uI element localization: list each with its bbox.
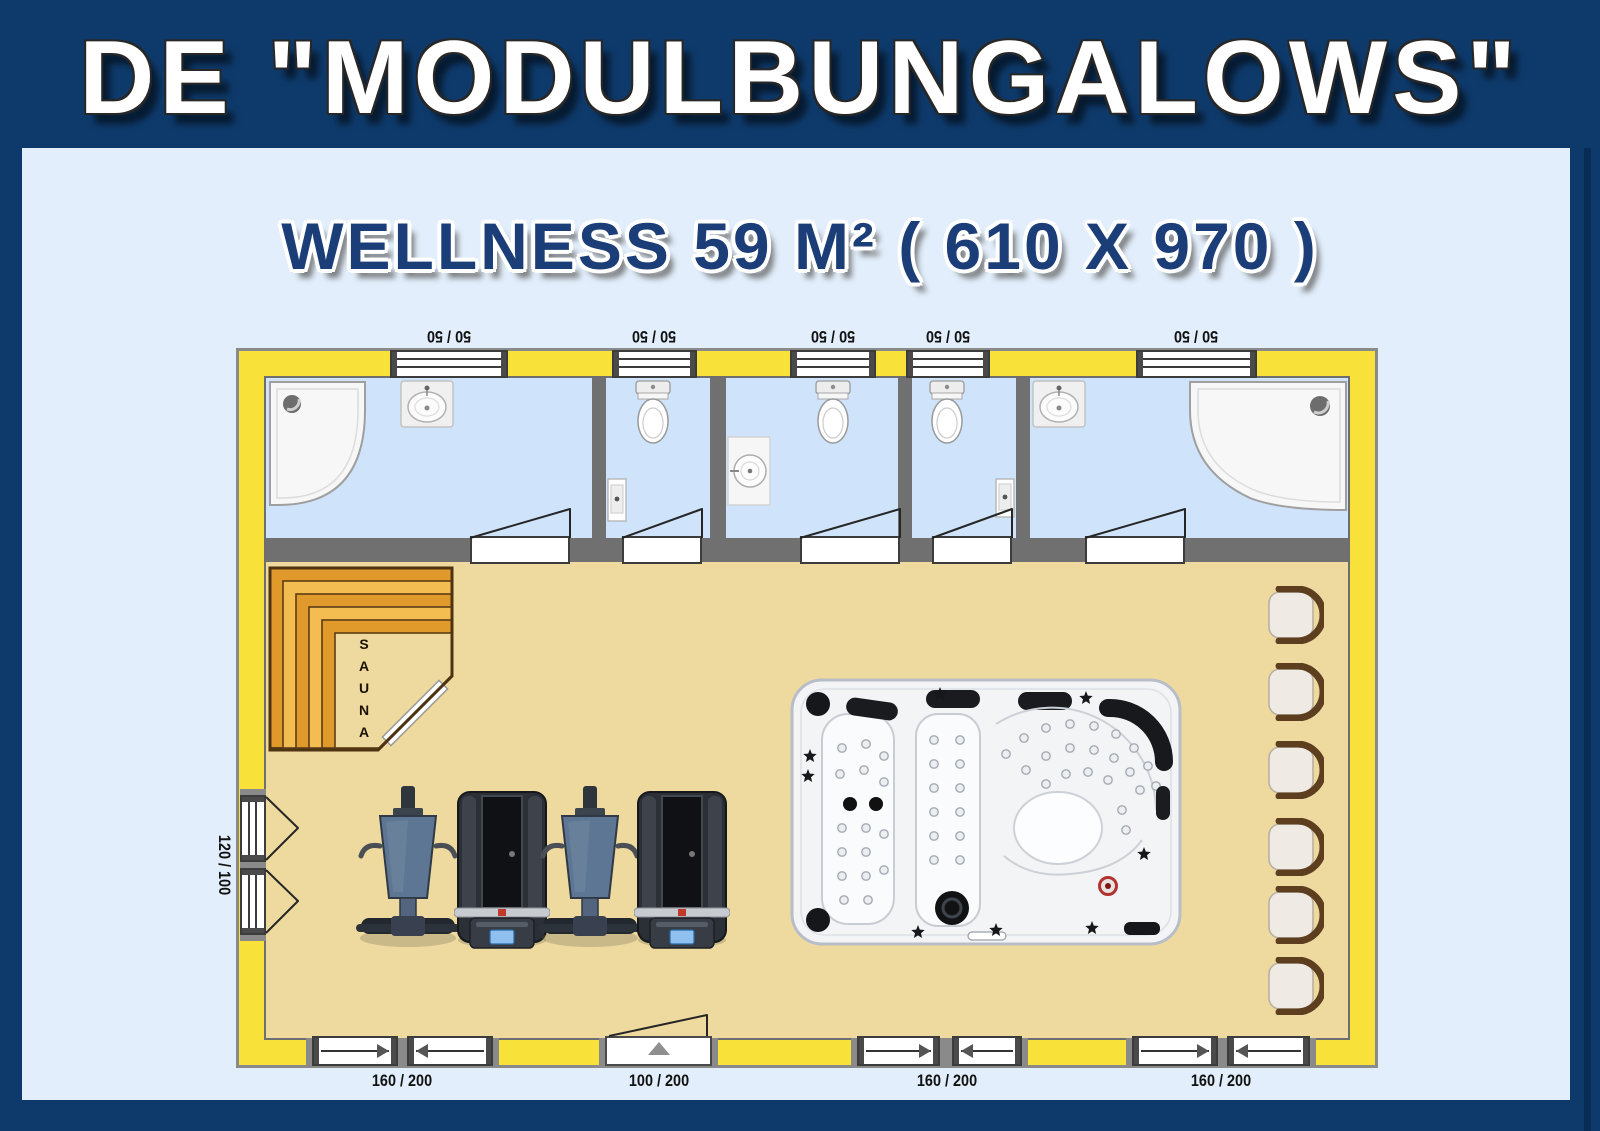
door-jamb [398, 1038, 407, 1066]
door-jamb [1218, 1038, 1227, 1066]
sliding-door-panel [857, 1036, 940, 1066]
chair-icon [1264, 741, 1324, 799]
door-jamb [712, 1038, 718, 1066]
sauna-label: SAUNA [350, 636, 372, 740]
entrance-door [605, 1036, 712, 1066]
interior-wall [1016, 378, 1030, 538]
plan-subtitle: WELLNESS 59 M² ( 610 X 970 ) [0, 196, 1600, 296]
treadmill-icon [634, 790, 730, 950]
interior-wall [710, 378, 726, 538]
chair-icon [1264, 957, 1324, 1015]
window-size-label: 120 / 100 [214, 835, 234, 895]
door-size-label: 100 / 200 [629, 1071, 689, 1091]
chair-icon [1264, 586, 1324, 644]
interior-wall [592, 378, 606, 538]
poster-page: DE "MODULBUNGALOWS" WELLNESS 59 M² ( 610… [0, 0, 1600, 1131]
washbasin-icon [1032, 380, 1086, 428]
door-jamb [1022, 1038, 1028, 1066]
fitness-machine-icon [538, 786, 642, 952]
fitness-machine-icon [356, 786, 460, 952]
door-size-label: 160 / 200 [372, 1071, 432, 1091]
door-jamb [493, 1038, 499, 1066]
door-size-label: 160 / 200 [1191, 1071, 1251, 1091]
toilet-icon [929, 380, 965, 446]
door [932, 536, 1012, 564]
toilet-icon [815, 380, 851, 446]
corner-shower-icon [268, 380, 368, 508]
door [470, 536, 570, 564]
door [800, 536, 900, 564]
door-jamb [1310, 1038, 1316, 1066]
sliding-door-panel [1227, 1036, 1310, 1066]
small-basin-icon [607, 478, 627, 522]
chair-icon [1264, 818, 1324, 876]
spa-whirlpool [790, 678, 1182, 946]
window [612, 350, 697, 378]
sliding-door-panel [1132, 1036, 1218, 1066]
door [1085, 536, 1185, 564]
window-size-label: 50 / 50 [926, 326, 970, 346]
treadmill-icon [454, 790, 550, 950]
door-jamb [940, 1038, 952, 1066]
interior-wall [898, 378, 912, 538]
chair-icon [1264, 886, 1324, 944]
chair-icon [1264, 663, 1324, 721]
window [240, 868, 266, 935]
sliding-door-panel [952, 1036, 1022, 1066]
door [622, 536, 702, 564]
window-size-label: 50 / 50 [1174, 326, 1218, 346]
sliding-door-panel [407, 1036, 493, 1066]
window-jamb [240, 935, 266, 941]
sliding-door-panel [312, 1036, 398, 1066]
door-size-label: 160 / 200 [917, 1071, 977, 1091]
window-size-label: 50 / 50 [427, 326, 471, 346]
washbasin-icon [727, 436, 771, 506]
window [240, 795, 266, 862]
small-basin-icon [995, 478, 1015, 518]
door-swing-marker [648, 1042, 670, 1055]
window [390, 350, 508, 378]
window [790, 350, 876, 378]
corner-shower-icon [1180, 380, 1348, 526]
toilet-icon [635, 380, 671, 446]
window [906, 350, 990, 378]
banner-title: DE "MODULBUNGALOWS" [0, 18, 1600, 138]
window-size-label: 50 / 50 [632, 326, 676, 346]
window-size-label: 50 / 50 [811, 326, 855, 346]
window [1136, 350, 1257, 378]
washbasin-icon [400, 380, 454, 428]
